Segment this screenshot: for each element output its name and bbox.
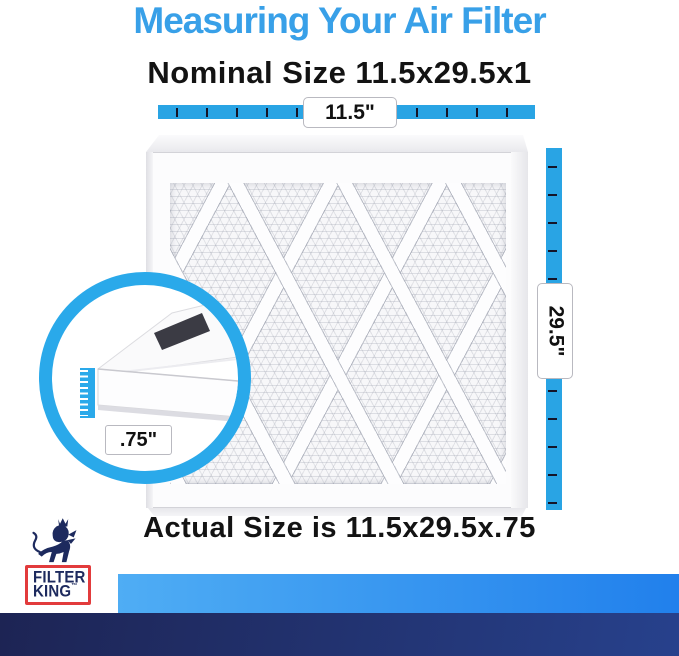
actual-size-heading: Actual Size is 11.5x29.5x.75: [0, 512, 679, 545]
height-measurement-label: 29.5": [537, 283, 573, 379]
depth-value: .75": [120, 429, 157, 452]
filter-right-edge: [511, 152, 528, 508]
trademark-symbol: ™: [71, 583, 77, 589]
infographic-canvas: Measuring Your Air Filter Nominal Size 1…: [0, 0, 679, 656]
page-title: Measuring Your Air Filter: [0, 0, 679, 42]
filter-king-wordmark: FILTER KING™: [25, 565, 91, 605]
lion-with-crown-icon: [28, 517, 92, 567]
light-blue-footer-bar: [118, 574, 679, 613]
depth-zoom-circle: .75": [39, 272, 251, 484]
width-value: 11.5": [325, 101, 375, 125]
logo-line-king: KING™: [33, 584, 88, 599]
filter-top-face: [146, 135, 528, 152]
height-ruler: 29.5": [546, 148, 562, 510]
width-measurement-label: 11.5": [303, 97, 397, 128]
depth-ruler: [80, 368, 95, 418]
nominal-size-heading: Nominal Size 11.5x29.5x1: [0, 55, 679, 91]
depth-measurement-label: .75": [105, 425, 172, 455]
filter-king-logo: FILTER KING™: [22, 515, 100, 612]
width-ruler: 11.5": [158, 105, 535, 119]
depth-ruler-ticks: [80, 370, 88, 416]
height-value: 29.5": [543, 306, 567, 357]
navy-footer-bar: [0, 613, 679, 656]
